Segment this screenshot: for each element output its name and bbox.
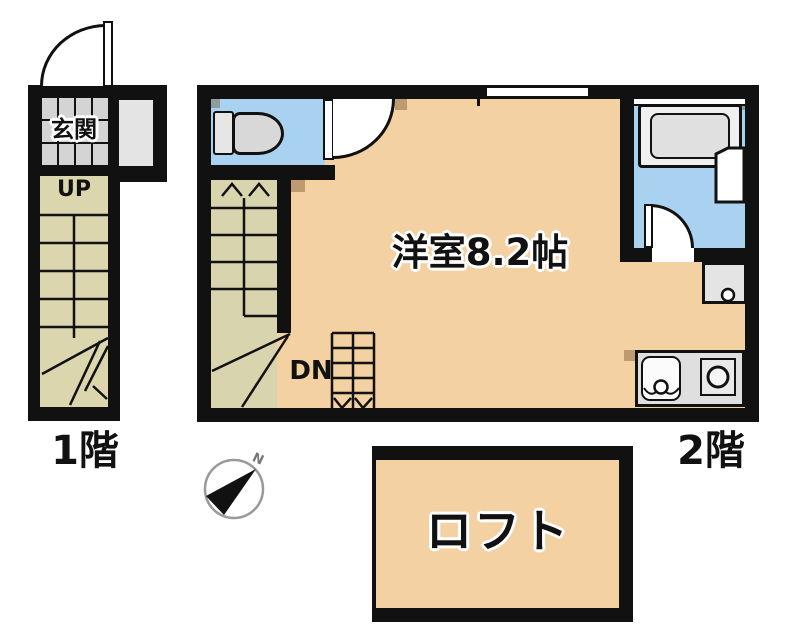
floor1-label: 1階: [22, 424, 148, 478]
shadow: [395, 99, 407, 110]
kitchen-sink-icon: [641, 356, 681, 401]
wall-bathroom-bottom-right: [694, 248, 745, 262]
window-top-wall: [487, 85, 588, 99]
stairs-up-label: UP: [40, 177, 108, 203]
wall-toilet-bottom: [197, 165, 335, 180]
stairs-down-label: DN: [287, 356, 335, 386]
wall-loft-left-thin: [372, 446, 376, 622]
bathtub-inner-icon: [650, 113, 730, 159]
wall-loft-top: [372, 446, 633, 460]
staircase-2f-floor: [211, 180, 277, 408]
entrance-door-swing-icon: [40, 24, 106, 86]
wall-bathroom-left: [620, 85, 634, 248]
wall-1f-right: [108, 168, 120, 421]
kitchen-stove-icon: [700, 358, 736, 396]
room-2f-label: 洋室8.2帖: [345, 226, 615, 278]
wall-1f-top: [28, 85, 167, 98]
compass-north-label: N: [245, 447, 271, 472]
wall-2f-bottom: [197, 408, 759, 422]
shadow: [211, 99, 220, 108]
bathroom-door-leaf-icon: [644, 204, 653, 248]
wall-2f-left: [197, 85, 211, 422]
entrance-door-leaf-icon: [103, 21, 113, 87]
wall-loft-bottom: [372, 608, 633, 622]
entrance-closet: [117, 98, 155, 168]
wall-2f-right: [745, 85, 759, 422]
entrance-label: 玄関: [38, 104, 110, 156]
wall-staircase-2f-right: [277, 180, 291, 333]
toilet-bowl-icon: [232, 112, 284, 155]
floor2-label: 2階: [648, 424, 774, 478]
washing-machine-pan-icon: [702, 262, 747, 304]
compass-icon: [205, 460, 263, 518]
wall-tick: [477, 97, 480, 106]
wall-bathroom-bottom-left: [620, 248, 652, 262]
entrance-step-edge: [40, 167, 108, 176]
staircase-1f-floor: [40, 175, 108, 407]
wall-1f-bottom: [28, 407, 120, 421]
wall-loft-right: [619, 446, 633, 622]
toilet-tank-icon: [213, 111, 234, 155]
shadow: [624, 350, 635, 361]
bathroom-door-threshold: [652, 248, 694, 262]
floorplan-canvas: 玄関 UP 1階 洋室8.2帖 DN 2階: [0, 0, 800, 628]
loft-label: ロフト: [378, 502, 618, 560]
